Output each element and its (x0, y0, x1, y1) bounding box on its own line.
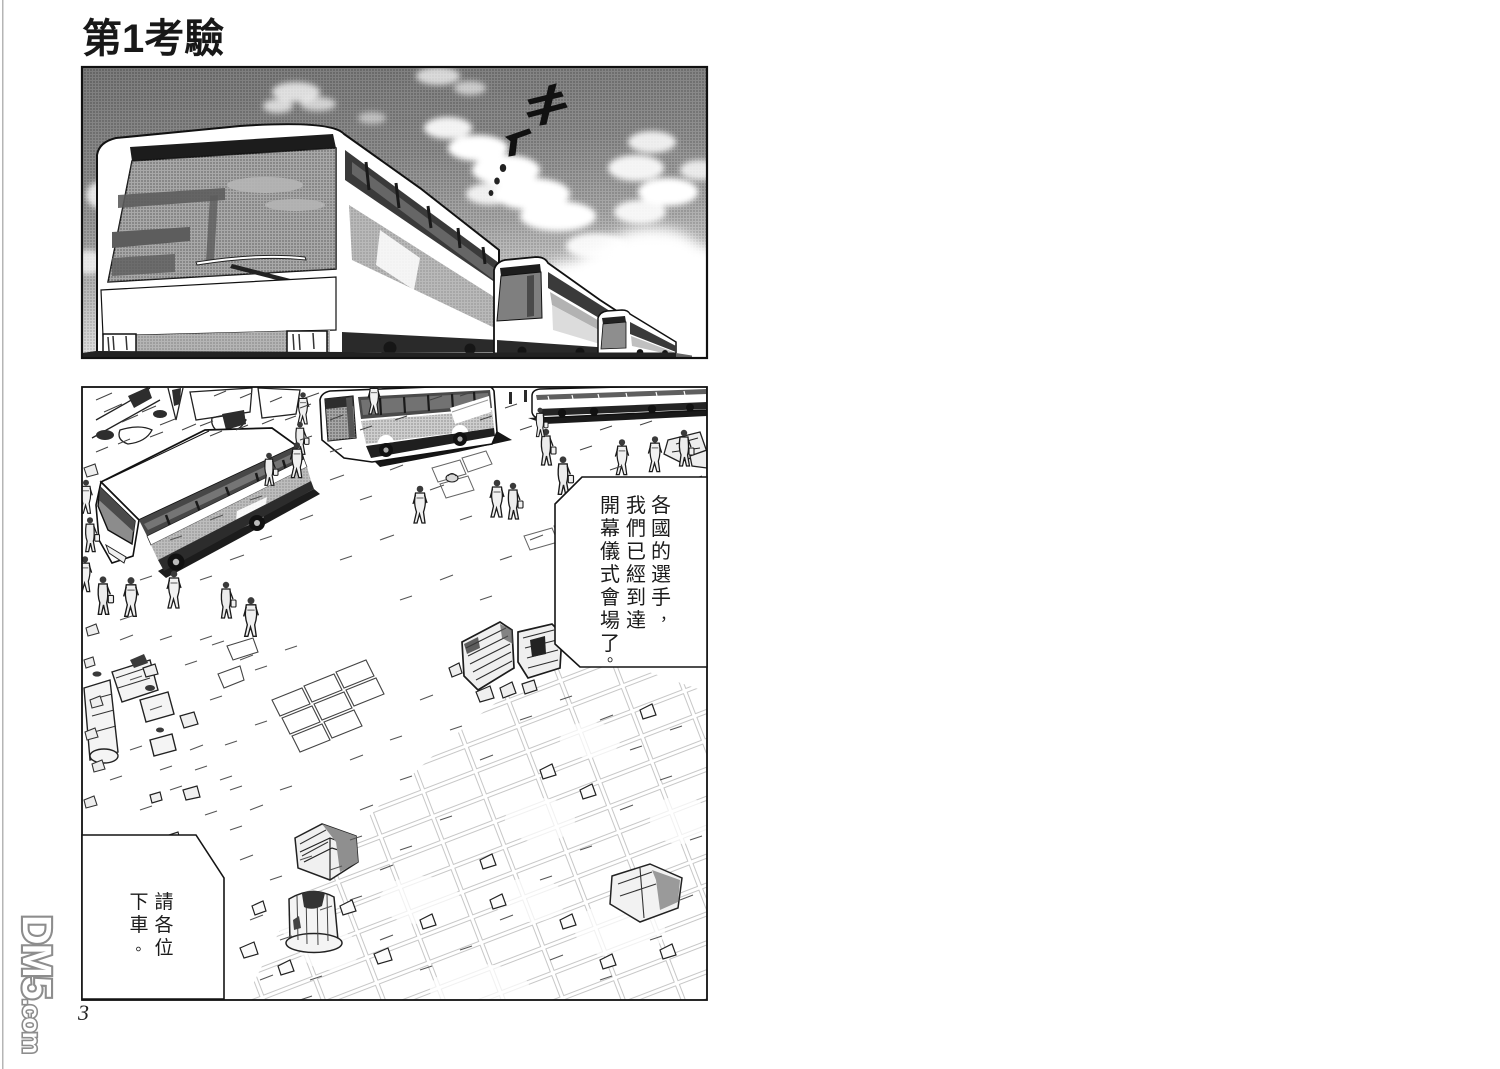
svg-text:開: 開 (600, 495, 620, 517)
svg-text:。: 。 (135, 937, 150, 954)
svg-text:們: 們 (626, 517, 646, 540)
svg-text:各: 各 (651, 494, 671, 517)
svg-text:達: 達 (626, 609, 646, 632)
svg-text:請: 請 (154, 891, 173, 913)
svg-text:經: 經 (626, 563, 646, 586)
svg-text:。: 。 (607, 648, 623, 665)
svg-text:會: 會 (600, 586, 620, 609)
svg-text:到: 到 (626, 586, 646, 609)
svg-text:國: 國 (651, 518, 671, 540)
svg-text:幕: 幕 (600, 517, 620, 540)
svg-text:位: 位 (154, 937, 173, 959)
svg-text:手: 手 (651, 586, 671, 609)
svg-text:，: ， (660, 607, 676, 624)
svg-text:各: 各 (154, 914, 173, 936)
svg-text:第1考驗: 第1考驗 (82, 16, 224, 61)
svg-text:3: 3 (77, 1000, 89, 1025)
svg-text:場: 場 (600, 609, 620, 632)
svg-text:我: 我 (626, 494, 646, 517)
svg-text:的: 的 (651, 540, 671, 563)
svg-text:已: 已 (626, 541, 646, 563)
svg-text:式: 式 (600, 563, 620, 586)
svg-text:下: 下 (129, 892, 148, 913)
svg-text:DM5.com: DM5.com (14, 915, 60, 1053)
svg-text:選: 選 (651, 563, 671, 586)
svg-text:儀: 儀 (600, 540, 620, 563)
svg-text:車: 車 (129, 914, 148, 936)
